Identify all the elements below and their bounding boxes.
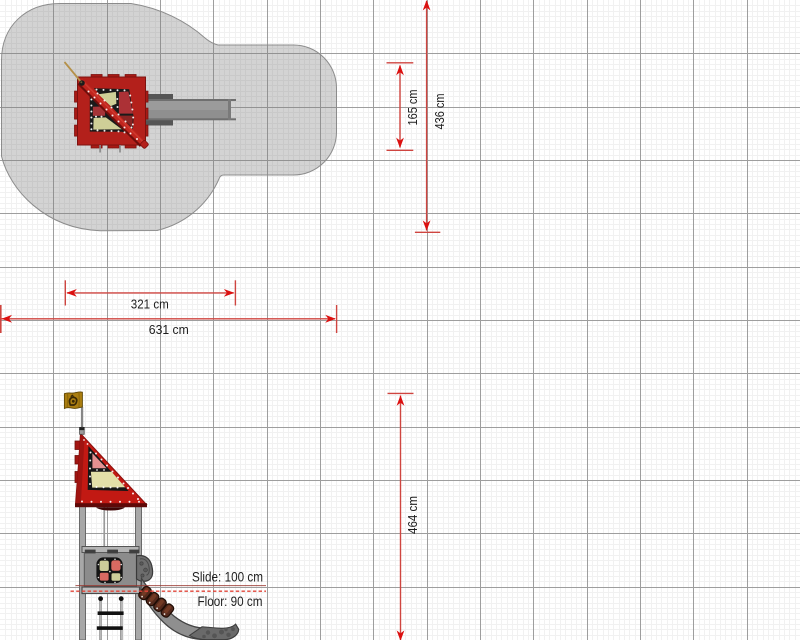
svg-text:165 cm: 165 cm [406,90,420,126]
svg-text:464 cm: 464 cm [406,496,420,534]
svg-text:Floor: 90 cm: Floor: 90 cm [198,593,263,609]
svg-text:Slide: 100 cm: Slide: 100 cm [192,568,263,584]
svg-text:321 cm: 321 cm [131,298,169,312]
svg-text:436 cm: 436 cm [433,94,447,130]
svg-text:631 cm: 631 cm [149,323,189,337]
